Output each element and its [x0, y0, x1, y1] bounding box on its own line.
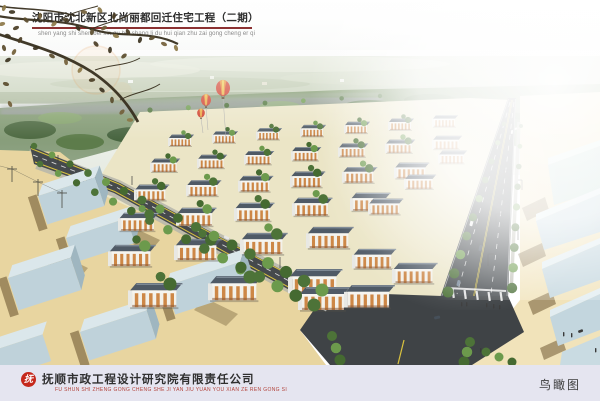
tree	[495, 353, 504, 362]
tree	[139, 205, 146, 212]
title-underline	[32, 27, 252, 29]
tree	[66, 160, 73, 167]
tree	[191, 222, 201, 232]
rendering-board: 沈阳市沈北新区北尚丽都回迁住宅工程（二期） shen yang shi shen…	[0, 0, 600, 401]
tree	[202, 204, 212, 214]
tree	[91, 188, 99, 196]
tree	[209, 177, 217, 185]
title-block: 沈阳市沈北新区北尚丽都回迁住宅工程（二期） shen yang shi shen…	[32, 10, 259, 37]
tree	[109, 198, 117, 206]
tree	[181, 234, 191, 244]
tree	[73, 179, 80, 186]
tree	[49, 152, 56, 159]
aerial-rendering	[0, 0, 600, 365]
tree	[120, 187, 128, 195]
tree	[37, 161, 43, 167]
tree	[170, 156, 177, 163]
tree	[331, 343, 342, 354]
tree	[482, 348, 491, 357]
tree	[308, 299, 321, 312]
tree	[173, 213, 183, 223]
company-logo: 抚	[21, 372, 36, 387]
tree	[199, 243, 209, 253]
tree	[163, 225, 172, 234]
tree	[157, 182, 165, 190]
tree	[462, 347, 473, 358]
view-caption: 鸟瞰图	[539, 376, 581, 393]
tree	[145, 216, 154, 225]
tree	[197, 200, 204, 207]
tree	[217, 153, 224, 160]
tree	[235, 262, 246, 273]
project-title: 沈阳市沈北新区北尚丽都回迁住宅工程（二期）	[32, 10, 259, 25]
tree	[139, 240, 150, 251]
tree	[217, 253, 228, 264]
title-pinyin: shen yang shi shen bei xin qu bei shang …	[38, 31, 259, 37]
tree	[31, 143, 37, 149]
tree	[465, 337, 475, 347]
tree	[156, 272, 166, 282]
tree	[212, 149, 217, 154]
tree	[244, 248, 255, 259]
tree	[138, 196, 147, 205]
tree	[165, 153, 170, 158]
tree	[209, 231, 220, 242]
tree	[132, 235, 140, 243]
footer-bar: 抚 抚顺市政工程设计研究院有限责任公司 FU SHUN SHI ZHENG GO…	[0, 365, 600, 401]
tree	[335, 355, 346, 366]
tree	[198, 229, 206, 237]
tree	[327, 331, 337, 341]
tree	[127, 207, 136, 216]
tree	[55, 170, 62, 177]
tree	[163, 277, 176, 290]
tree	[204, 174, 210, 180]
tree	[227, 240, 238, 251]
tree	[152, 178, 158, 184]
tree	[84, 169, 92, 177]
company-pinyin: FU SHUN SHI ZHENG GONG CHENG SHE JI YAN …	[55, 387, 287, 393]
tree	[155, 204, 164, 213]
tree	[102, 178, 110, 186]
company-name: 抚顺市政工程设计研究院有限责任公司	[42, 371, 255, 387]
